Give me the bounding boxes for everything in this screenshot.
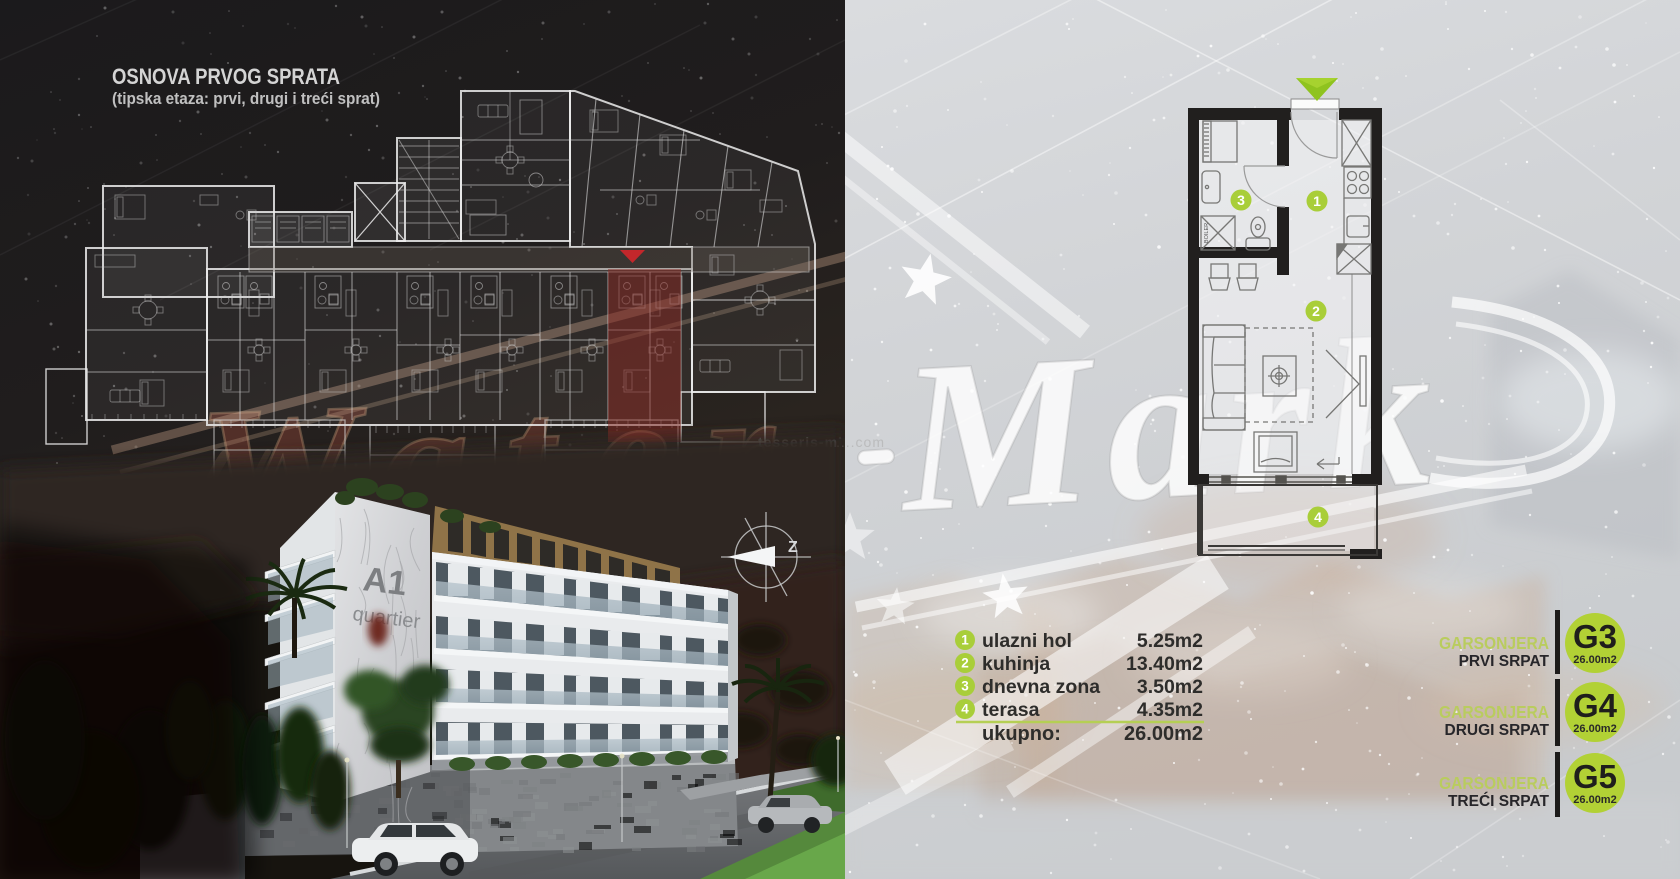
svg-text:26.00m2: 26.00m2 bbox=[1573, 723, 1616, 735]
svg-text:2: 2 bbox=[961, 656, 969, 671]
svg-text:1: 1 bbox=[961, 633, 969, 648]
svg-text:G4: G4 bbox=[1573, 687, 1618, 724]
svg-text:(tipska etaza: prvi, drugi i t: (tipska etaza: prvi, drugi i treći sprat… bbox=[112, 89, 380, 108]
svg-text:4.35m2: 4.35m2 bbox=[1137, 699, 1203, 721]
svg-text:ukupno:: ukupno: bbox=[982, 723, 1061, 745]
svg-text:26.00m2: 26.00m2 bbox=[1573, 654, 1616, 666]
svg-text:PRVI SRPAT: PRVI SRPAT bbox=[1459, 653, 1550, 670]
svg-text:G5: G5 bbox=[1573, 758, 1617, 795]
svg-text:kuhinja: kuhinja bbox=[982, 653, 1050, 675]
svg-text:GARSONJERA: GARSONJERA bbox=[1439, 702, 1549, 722]
svg-text:DRUGI SRPAT: DRUGI SRPAT bbox=[1445, 722, 1550, 739]
svg-text:OSNOVA PRVOG SPRATA: OSNOVA PRVOG SPRATA bbox=[112, 64, 340, 89]
svg-text:3.50m2: 3.50m2 bbox=[1137, 676, 1203, 698]
svg-text:GARSONJERA: GARSONJERA bbox=[1439, 633, 1549, 653]
svg-text:3: 3 bbox=[961, 679, 969, 694]
svg-text:26.00m2: 26.00m2 bbox=[1573, 794, 1616, 806]
svg-text:TREĆI SRPAT: TREĆI SRPAT bbox=[1448, 792, 1550, 810]
svg-text:26.00m2: 26.00m2 bbox=[1124, 723, 1203, 745]
svg-text:ulazni hol: ulazni hol bbox=[982, 630, 1072, 652]
svg-text:4: 4 bbox=[961, 702, 969, 717]
svg-text:dnevna zona: dnevna zona bbox=[982, 676, 1100, 698]
svg-text:13.40m2: 13.40m2 bbox=[1126, 653, 1203, 675]
svg-text:2: 2 bbox=[1312, 303, 1320, 319]
svg-text:terasa: terasa bbox=[982, 699, 1040, 721]
svg-text:G3: G3 bbox=[1573, 618, 1617, 655]
svg-text:4: 4 bbox=[1314, 509, 1322, 525]
svg-text:5.25m2: 5.25m2 bbox=[1137, 630, 1203, 652]
svg-text:BOILER: BOILER bbox=[1204, 223, 1210, 243]
svg-text:Z: Z bbox=[788, 539, 798, 556]
svg-text:GARSONJERA: GARSONJERA bbox=[1439, 773, 1549, 793]
svg-text:1: 1 bbox=[1313, 193, 1321, 209]
svg-text:A1: A1 bbox=[361, 560, 409, 603]
svg-text:3: 3 bbox=[1237, 192, 1245, 208]
